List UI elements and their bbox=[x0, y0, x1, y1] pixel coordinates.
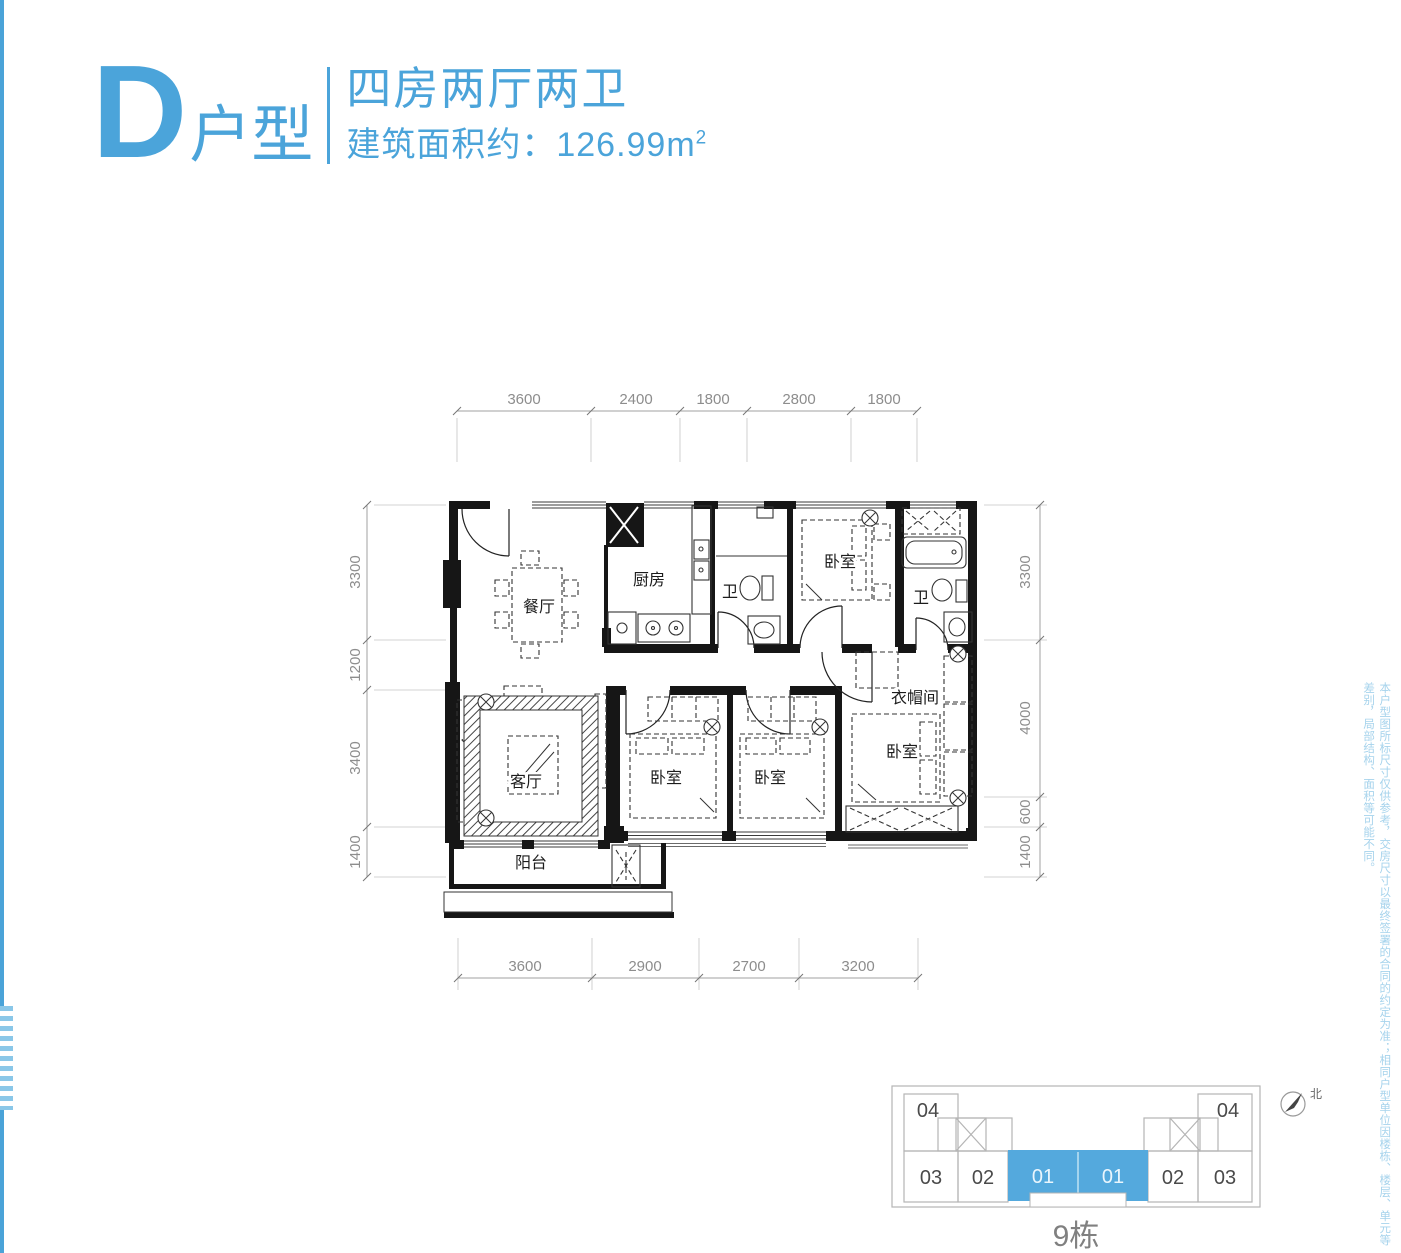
room-label-bath2: 卫 bbox=[913, 590, 929, 607]
dim-right-2: 4000 bbox=[1017, 701, 1034, 734]
dim-left-1: 3300 bbox=[347, 555, 364, 588]
layout-title: 四房两厅两卫 bbox=[346, 65, 707, 112]
dim-bottom-3: 2700 bbox=[732, 958, 765, 975]
dim-top-2: 2400 bbox=[619, 391, 652, 408]
unit-type-letter: D bbox=[92, 58, 185, 166]
floorplan-page: D 户型 四房两厅两卫 建筑面积约：126.99m2 bbox=[0, 0, 1401, 1253]
header-title-block: 四房两厅两卫 建筑面积约：126.99m2 bbox=[346, 65, 707, 166]
dim-left-2: 1200 bbox=[347, 648, 364, 681]
unit-01-right: 01 bbox=[1102, 1166, 1124, 1188]
room-label-bedroom-top: 卧室 bbox=[824, 553, 856, 571]
dim-left-3: 3400 bbox=[347, 741, 364, 774]
room-label-bedroom-mid2: 卧室 bbox=[754, 769, 786, 787]
unit-02-right: 02 bbox=[1162, 1167, 1184, 1189]
unit-02-left: 02 bbox=[972, 1167, 994, 1189]
dim-right-1: 3300 bbox=[1017, 555, 1034, 588]
dim-top-1: 3600 bbox=[507, 391, 540, 408]
disclaimer-text: 本户型图所标尺寸仅供参考，交房尺寸以最终签署的合同的约定为准；相同户型单位因楼栋… bbox=[1360, 682, 1392, 1253]
header: D 户型 四房两厅两卫 建筑面积约：126.99m2 bbox=[92, 58, 707, 166]
dim-right-3: 600 bbox=[1017, 799, 1034, 824]
area-value: 建筑面积约：126.99m bbox=[346, 126, 695, 164]
room-label-bath1: 卫 bbox=[722, 584, 738, 601]
compass: 北 bbox=[1281, 1087, 1322, 1116]
room-label-balcony: 阳台 bbox=[515, 854, 547, 872]
dim-left-4: 1400 bbox=[347, 835, 364, 868]
unit-type-word: 户型 bbox=[189, 107, 313, 166]
building-key-plan: 04 03 02 01 01 02 03 04 9栋 北 bbox=[880, 1078, 1330, 1253]
unit-01-left: 01 bbox=[1032, 1166, 1054, 1188]
unit-03-left: 03 bbox=[920, 1167, 942, 1189]
floor-plan: 3600 2400 1800 2800 1800 3600 2900 2700 … bbox=[340, 385, 1060, 1025]
unit-04-left: 04 bbox=[917, 1100, 939, 1122]
dim-right-4: 1400 bbox=[1017, 835, 1034, 868]
dim-top-5: 1800 bbox=[867, 391, 900, 408]
area-text: 建筑面积约：126.99m2 bbox=[346, 117, 707, 166]
left-dash-decoration bbox=[0, 1006, 13, 1110]
area-superscript: 2 bbox=[696, 128, 708, 149]
flue-duct bbox=[606, 503, 644, 547]
room-label-bedroom-mid1: 卧室 bbox=[650, 769, 682, 787]
room-label-cloakroom: 衣帽间 bbox=[891, 689, 939, 707]
compass-north-label: 北 bbox=[1310, 1087, 1322, 1101]
header-divider-line bbox=[327, 67, 330, 164]
dim-top-3: 1800 bbox=[696, 391, 729, 408]
unit-03-right: 03 bbox=[1214, 1167, 1236, 1189]
dim-bottom-1: 3600 bbox=[508, 958, 541, 975]
dim-bottom-4: 3200 bbox=[841, 958, 874, 975]
compass-needle bbox=[1285, 1093, 1302, 1112]
unit-04-right: 04 bbox=[1217, 1100, 1239, 1122]
balcony-slab bbox=[444, 892, 672, 912]
building-label: 9栋 bbox=[1053, 1220, 1100, 1253]
dim-bottom-2: 2900 bbox=[628, 958, 661, 975]
room-label-living: 客厅 bbox=[510, 773, 542, 791]
room-label-kitchen: 厨房 bbox=[633, 571, 665, 589]
room-label-dining: 餐厅 bbox=[523, 598, 555, 616]
key-plan-highlight-units bbox=[1008, 1150, 1148, 1207]
room-label-bedroom-master: 卧室 bbox=[886, 743, 918, 761]
dim-top-4: 2800 bbox=[782, 391, 815, 408]
